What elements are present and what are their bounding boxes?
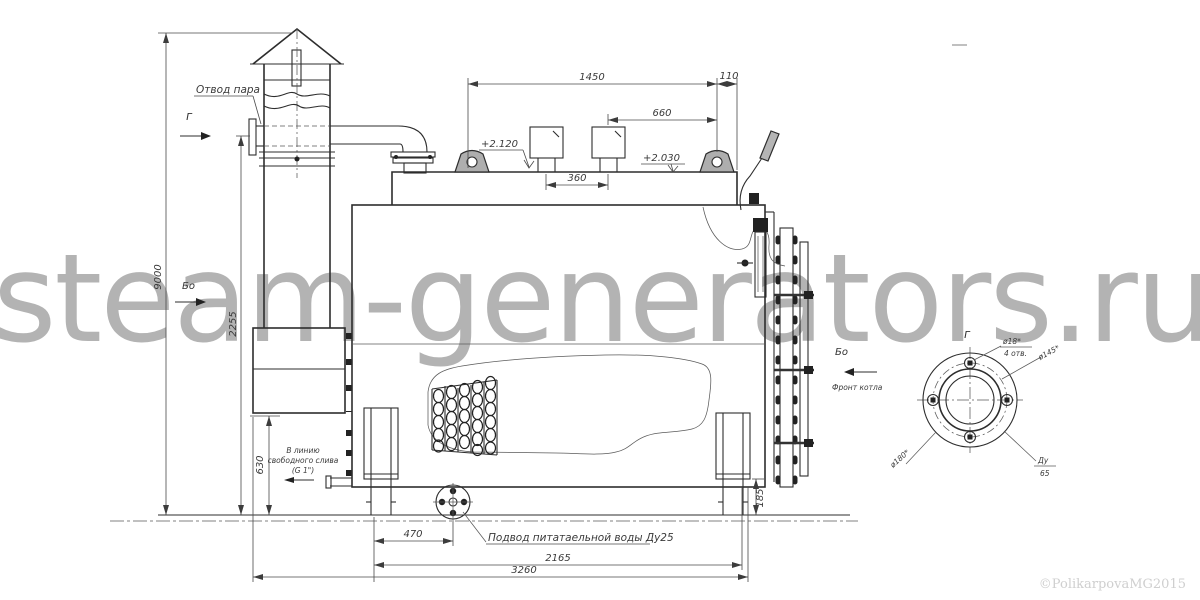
view-bo-label: Бо [182, 281, 195, 292]
dim-660: 660 [652, 108, 671, 119]
technical-drawing: г ø18* 4 отв. ø145* ø180* Ду 65 1450 110… [0, 0, 1200, 600]
rear-flange-strip [774, 228, 814, 487]
chimney [249, 29, 344, 328]
tube-bank-cutaway [428, 355, 711, 456]
callouts: Отвод пара г Бо Бо Фронт котла В линию с… [175, 84, 883, 544]
steam-outlet-pipe [330, 126, 435, 173]
view-bo-arrow-icon [196, 298, 206, 306]
boiler-top [392, 127, 737, 205]
feed-water-flange [433, 483, 486, 542]
boiler-body [352, 205, 774, 487]
level-marks: +2.120 +2.030 [479, 139, 685, 172]
dim-3260: 3260 [511, 565, 536, 576]
flange-detail-view: г ø18* 4 отв. ø145* ø180* Ду 65 [888, 327, 1062, 478]
dim-110: 110 [719, 71, 738, 82]
dim-630: 630 [255, 455, 266, 474]
drain-label-line3: (G 1") [292, 466, 314, 475]
dim-360: 360 [567, 173, 586, 184]
dim-2255: 2255 [228, 311, 239, 336]
level-mark-2120: +2.120 [481, 139, 518, 150]
dim-9000: 9000 [153, 264, 164, 289]
drain-label-line2: свободного слива [268, 456, 339, 465]
flange-outer-dia-label: ø180* [888, 447, 912, 470]
view-bo-front-label: Бо [835, 347, 848, 358]
flange-hole-count-label: 4 отв. [1004, 349, 1027, 358]
flange-dn-value: 65 [1040, 469, 1050, 478]
detail-view-label: г [964, 327, 971, 341]
front-arrow-icon [844, 368, 854, 376]
lifting-lug-right [700, 151, 734, 173]
drawing-sheet: steam-generators.ru [0, 0, 1200, 600]
flange-hole-dia-label: ø18* [1002, 337, 1021, 346]
feed-water-label: Подвод питатаельной воды Ду25 [488, 532, 674, 544]
level-probe [703, 207, 785, 297]
valve-lever [740, 131, 779, 210]
dim-470: 470 [403, 529, 422, 540]
flange-dn-label: Ду [1037, 456, 1049, 465]
drain-arrow-icon [284, 477, 294, 483]
steam-outlet-label: Отвод пара [196, 84, 260, 96]
dimensions: 1450 110 660 360 9000 2255 630 185 [153, 33, 766, 582]
view-g-label: г [186, 109, 193, 123]
level-mark-2030: +2.030 [643, 153, 680, 164]
front-of-boiler-label: Фронт котла [832, 383, 883, 392]
lifting-lug-left [455, 151, 489, 173]
view-g-arrow-icon [201, 132, 211, 140]
flange-bolt-circle-label: ø145* [1036, 343, 1061, 362]
copyright-note: ©PolikarpovaMG2015 [1039, 577, 1186, 592]
dim-1450: 1450 [579, 72, 604, 83]
dim-185: 185 [755, 488, 766, 507]
drain-label-line1: В линию [286, 446, 319, 455]
dim-2165: 2165 [545, 553, 570, 564]
